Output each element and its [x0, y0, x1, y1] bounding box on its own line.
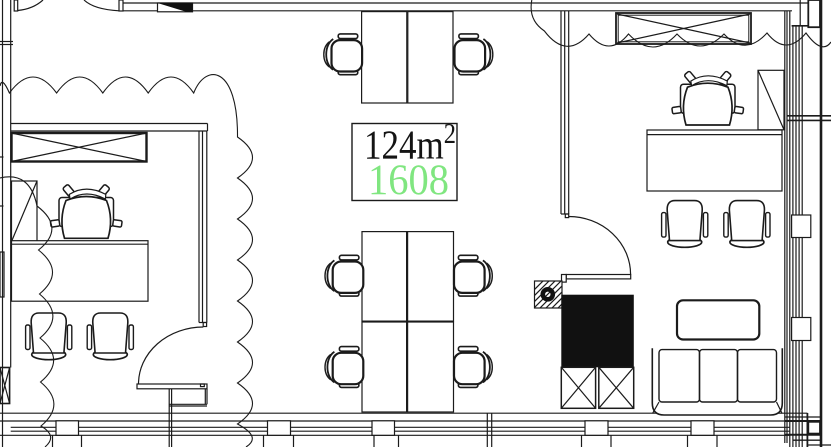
svg-text:1608: 1608: [368, 156, 449, 204]
